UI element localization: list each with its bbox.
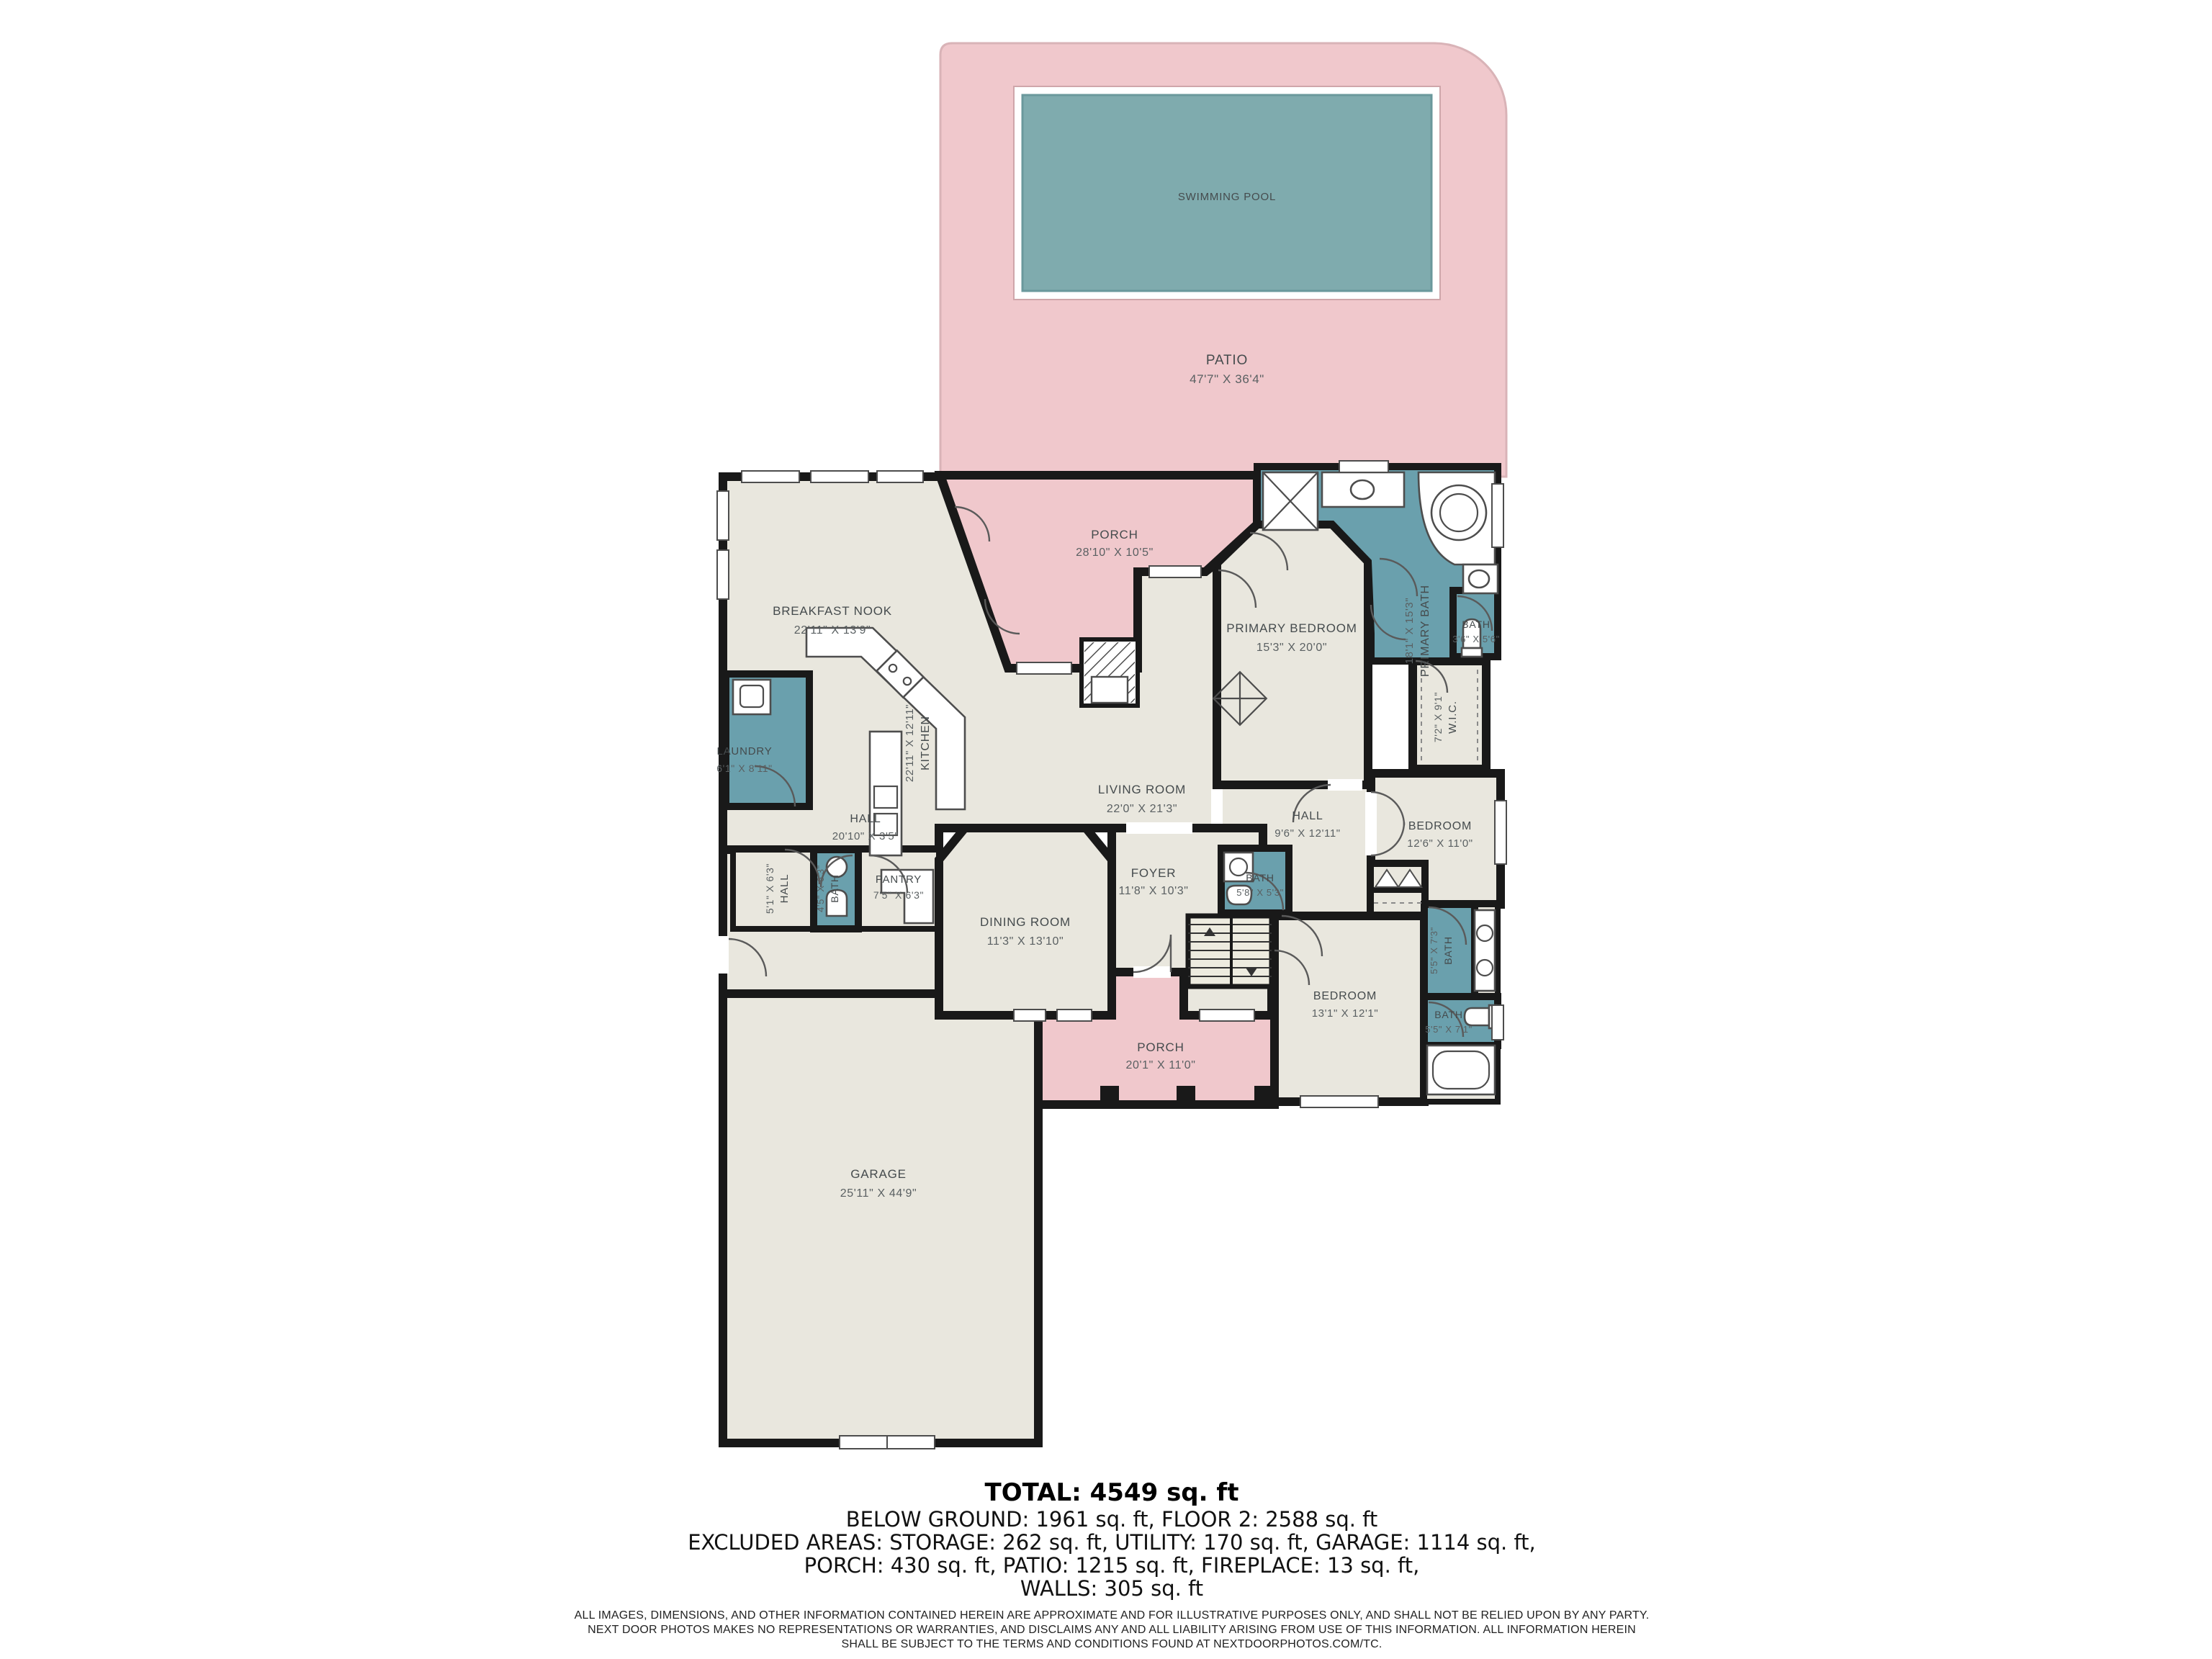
bath-jack-dims: 5'5" X 7'3" (1429, 927, 1439, 974)
porch-bottom-label: PORCH (1137, 1040, 1184, 1054)
patio-area: SWIMMING POOL PATIO 47'7" X 36'4" (940, 43, 1506, 477)
bath-hall-label: BATH (829, 874, 840, 903)
living-room-dims: 22'0" X 21'3" (1107, 803, 1177, 815)
porch-bottom-dims: 20'1" X 11'0" (1125, 1059, 1195, 1071)
laundry-label: LAUNDRY (716, 745, 772, 757)
toilet-icon (1465, 1008, 1489, 1025)
bedroom-hall-gap (1328, 779, 1362, 791)
disclaimer-line1: ALL IMAGES, DIMENSIONS, AND OTHER INFORM… (575, 1609, 1650, 1622)
disclaimer-block: ALL IMAGES, DIMENSIONS, AND OTHER INFORM… (575, 1609, 1650, 1650)
hall-main-label: HALL (850, 813, 881, 825)
foyer-dims: 11'8" X 10'3" (1118, 885, 1188, 897)
sink-icon (1469, 570, 1489, 588)
foyer-label: FOYER (1131, 866, 1177, 880)
laundry-dims: 6'1" X 8'11" (716, 763, 773, 774)
garage-label: GARAGE (850, 1167, 907, 1181)
opening-living-hall (1211, 789, 1223, 824)
floor-plan-svg: SWIMMING POOL PATIO 47'7" X 36'4" (0, 0, 2212, 1659)
sink-icon (1351, 480, 1374, 499)
garage-dims: 25'11" X 44'9" (840, 1187, 917, 1200)
primary-bedroom-label: PRIMARY BEDROOM (1226, 621, 1357, 635)
hall-bedrooms-dims: 9'6" X 12'11" (1274, 827, 1340, 840)
primary-bath-label: PRIMARY BATH (1419, 585, 1431, 677)
wic-dims: 7'2" X 9'1" (1432, 692, 1444, 742)
patio-dims: 47'7" X 36'4" (1190, 372, 1264, 386)
hall-main-dims: 20'10" X 3'5" (832, 830, 899, 842)
pantry-label: PANTRY (876, 873, 922, 886)
side-door-gap (717, 936, 729, 974)
opening-foyer-living (1126, 822, 1192, 834)
bath-hall-dims: 4'5" X 6'3" (815, 865, 826, 912)
living-room-label: LIVING ROOM (1098, 783, 1186, 796)
dining-room-label: DINING ROOM (980, 915, 1071, 929)
porch-post (1100, 1086, 1119, 1105)
summary-total: TOTAL: 4549 sq. ft (985, 1478, 1239, 1507)
porch-top-dims: 28'10" X 10'5" (1076, 547, 1154, 559)
hall-small-label: HALL (778, 874, 791, 904)
bedroom-right-dims: 12'6" X 11'0" (1407, 837, 1473, 850)
bath-small-dims: 3'6" X 5'6" (1452, 634, 1500, 644)
breakfast-nook-label: BREAKFAST NOOK (773, 604, 892, 618)
summary-block: TOTAL: 4549 sq. ft BELOW GROUND: 1961 sq… (688, 1478, 1536, 1601)
disclaimer-line2: NEXT DOOR PHOTOS MAKES NO REPRESENTATION… (588, 1624, 1636, 1636)
porch-top-label: PORCH (1091, 528, 1138, 541)
summary-line1: BELOW GROUND: 1961 sq. ft, FLOOR 2: 2588… (846, 1507, 1378, 1532)
toilet-tank (1462, 648, 1482, 657)
bath-foyer-label: BATH (1246, 872, 1274, 884)
bedroom-bottom-label: BEDROOM (1313, 990, 1377, 1002)
bath-small-label: BATH (1462, 619, 1491, 630)
pool-label: SWIMMING POOL (1178, 191, 1276, 203)
pantry-dims: 7'5" X 6'3" (873, 889, 924, 901)
disclaimer-line3: SHALL BE SUBJECT TO THE TERMS AND CONDIT… (841, 1638, 1382, 1650)
vanity (1475, 910, 1495, 991)
patio-label: PATIO (1206, 353, 1248, 368)
summary-line2: EXCLUDED AREAS: STORAGE: 262 sq. ft, UTI… (688, 1530, 1536, 1555)
dining-room-dims: 11'3" X 13'10" (987, 935, 1064, 948)
summary-line4: WALLS: 305 sq. ft (1020, 1576, 1203, 1601)
kitchen-dims: 22'11" X 12'11" (904, 704, 916, 782)
bath-jack-label: BATH (1442, 936, 1454, 965)
bath-bottom-label: BATH (1434, 1009, 1463, 1020)
garage-floor (723, 994, 1038, 1443)
bath-bottom-dims: 5'5" X 7'1" (1425, 1024, 1473, 1035)
stairs (1188, 916, 1272, 986)
bedroom-right-label: BEDROOM (1408, 820, 1472, 832)
primary-bedroom-dims: 15'3" X 20'0" (1256, 642, 1327, 654)
floor-plan-page: SWIMMING POOL PATIO 47'7" X 36'4" (0, 0, 2212, 1659)
summary-line3: PORCH: 430 sq. ft, PATIO: 1215 sq. ft, F… (804, 1553, 1420, 1578)
porch-post (1254, 1086, 1273, 1105)
bedroom-bottom-dims: 13'1" X 12'1" (1312, 1007, 1379, 1020)
fireplace (1082, 639, 1138, 706)
bedroom2-door-gap (1365, 792, 1377, 855)
kitchen-label: KITCHEN (920, 716, 932, 770)
primary-bedroom-floor (1217, 524, 1368, 785)
porch-post (1177, 1086, 1195, 1105)
tub-surround (1427, 1046, 1495, 1094)
hall-small-dims: 5'1" X 6'3" (764, 863, 775, 914)
bath-foyer-dims: 5'8" X 5'3" (1236, 887, 1284, 898)
primary-bath-dims: 18'1" X 15'3" (1403, 598, 1416, 665)
fireplace-hearth (1092, 677, 1128, 703)
breakfast-nook-dims: 22'11" X 13'9" (794, 624, 871, 637)
wic-label: W.I.C. (1447, 701, 1459, 734)
hall-bedrooms-label: HALL (1292, 810, 1323, 822)
